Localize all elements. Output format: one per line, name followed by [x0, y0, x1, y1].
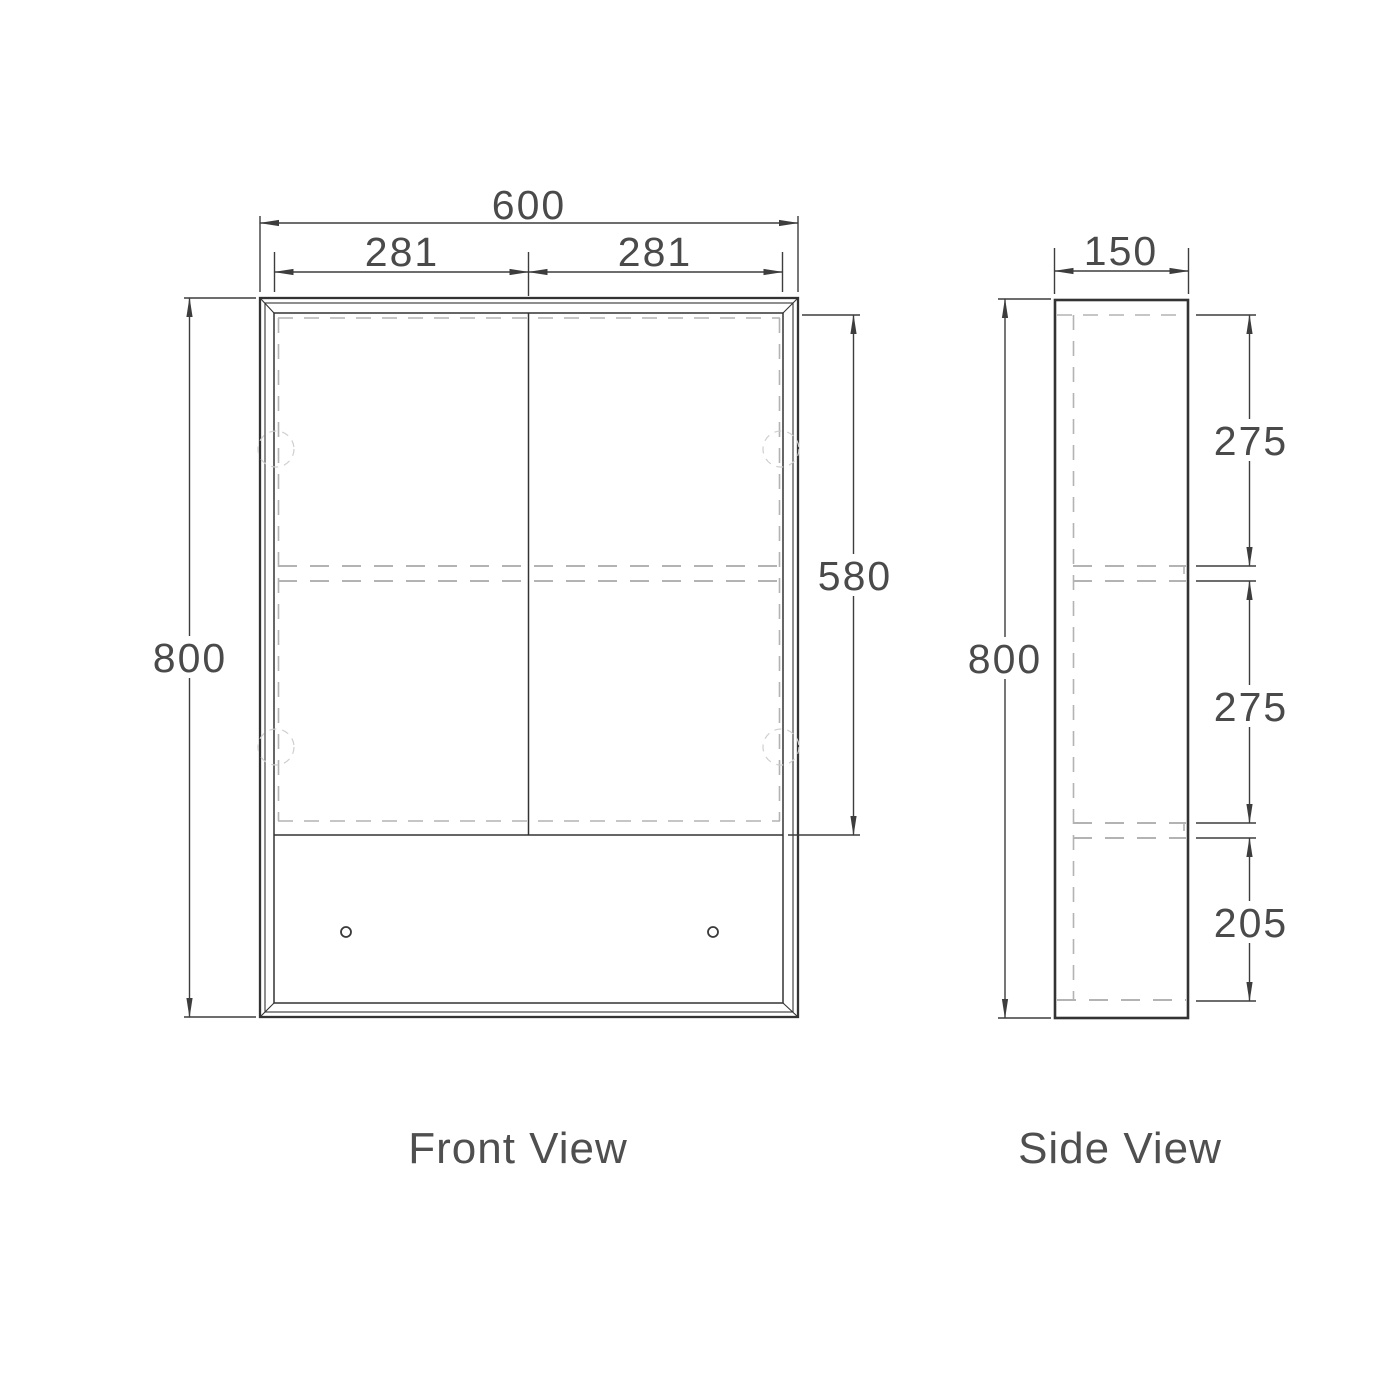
dimension-label: 150 — [1084, 228, 1158, 274]
side-view-title: Side View — [1018, 1124, 1222, 1173]
side-view: 150 800 275 275 — [963, 228, 1292, 1173]
dimension-label: 800 — [153, 635, 227, 681]
drawing-canvas: 600 281 281 800 580 Front V — [0, 0, 1400, 1400]
dimension-label: 580 — [818, 553, 892, 599]
side-dim-middle-section: 275 — [1196, 581, 1292, 823]
fixing-hole-icon — [341, 927, 351, 937]
side-outer-frame — [1055, 300, 1188, 1018]
hinge-icon — [763, 431, 799, 467]
dimension-label: 275 — [1214, 418, 1288, 464]
side-dim-overall-height: 800 — [963, 299, 1051, 1018]
hinge-icon — [258, 431, 294, 467]
dimension-label: 281 — [365, 229, 439, 275]
side-dim-top-section: 275 — [1196, 315, 1292, 566]
side-cabinet-outline — [1055, 300, 1188, 1018]
front-dim-overall-height: 800 — [148, 298, 256, 1017]
fixing-hole-icon — [708, 927, 718, 937]
front-bevel-bottom-left — [260, 1003, 274, 1017]
dimension-label: 205 — [1214, 900, 1288, 946]
front-view-title: Front View — [408, 1124, 628, 1173]
front-dim-door-height: 580 — [788, 315, 896, 835]
front-bevel-bottom-right — [783, 1003, 798, 1017]
hinge-icon — [763, 729, 799, 765]
front-cabinet-outline — [258, 298, 799, 1017]
dimension-label: 600 — [492, 182, 566, 228]
hinge-icon — [258, 729, 294, 765]
cabinet-technical-drawing: 600 281 281 800 580 Front V — [0, 0, 1400, 1400]
side-dim-depth: 150 — [1055, 228, 1189, 294]
dimension-label: 800 — [968, 636, 1042, 682]
dimension-label: 281 — [618, 229, 692, 275]
side-dim-bottom-section: 205 — [1196, 838, 1292, 1001]
front-dim-door-widths: 281 281 — [275, 229, 783, 296]
dimension-label: 275 — [1214, 684, 1288, 730]
front-view: 600 281 281 800 580 Front V — [148, 182, 896, 1173]
front-bevel-top-left — [260, 298, 274, 313]
front-bevel-top-right — [783, 298, 798, 313]
